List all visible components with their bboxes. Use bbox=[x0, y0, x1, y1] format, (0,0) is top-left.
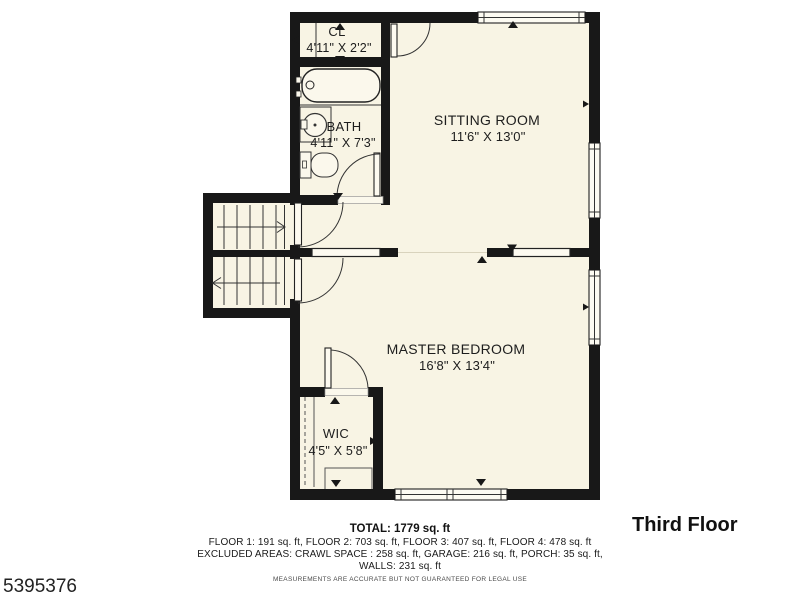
room-label-sitting-room: SITTING ROOM bbox=[434, 112, 540, 128]
floor-plan-drawing bbox=[0, 0, 800, 600]
room-dimensions-master-bedroom: 16'8" X 13'4" bbox=[419, 359, 495, 374]
window-sitting-top bbox=[478, 12, 585, 23]
room-label-bath: BATH bbox=[327, 120, 362, 135]
floor-plan-page: CL 4'11" X 2'2" BATH 4'11" X 7'3" SITTIN… bbox=[0, 0, 800, 600]
window-master-bottom bbox=[395, 489, 507, 500]
summary-excluded-areas: EXCLUDED AREAS: CRAWL SPACE : 258 sq. ft… bbox=[197, 549, 602, 561]
room-dimensions-wic: 4'5" X 5'8" bbox=[309, 444, 368, 458]
room-dimensions-bath: 4'11" X 7'3" bbox=[310, 136, 375, 150]
summary-total: TOTAL: 1779 sq. ft bbox=[350, 523, 451, 536]
listing-id: 5395376 bbox=[3, 576, 77, 598]
summary-walls: WALLS: 231 sq. ft bbox=[359, 561, 441, 573]
room-dimensions-sitting-room: 11'6" X 13'0" bbox=[450, 130, 525, 145]
measurement-disclaimer: MEASUREMENTS ARE ACCURATE BUT NOT GUARAN… bbox=[273, 576, 527, 583]
bathtub-icon bbox=[296, 69, 380, 102]
window-master-right bbox=[589, 270, 600, 345]
summary-floors: FLOOR 1: 191 sq. ft, FLOOR 2: 703 sq. ft… bbox=[209, 537, 592, 549]
room-label-master-bedroom: MASTER BEDROOM bbox=[387, 341, 526, 357]
floor-title: Third Floor bbox=[632, 514, 738, 537]
toilet-icon bbox=[300, 152, 338, 178]
room-label-wic: WIC bbox=[323, 427, 349, 442]
window-sitting-right bbox=[589, 143, 600, 218]
room-dimensions-cl: 4'11" X 2'2" bbox=[306, 41, 371, 55]
room-label-cl: CL bbox=[328, 25, 345, 40]
